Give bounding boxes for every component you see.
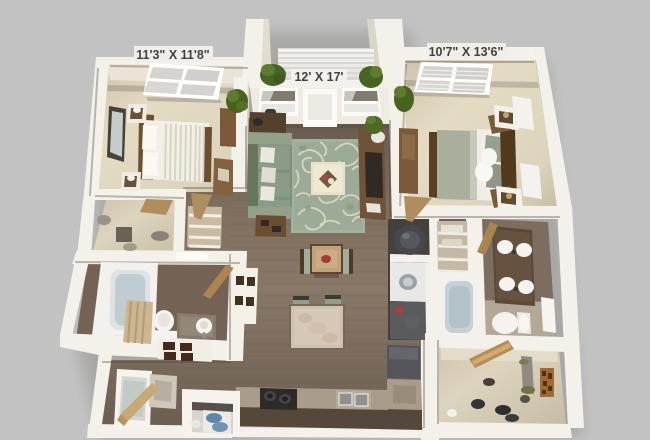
svg-text:12' X 17': 12' X 17' — [294, 70, 343, 84]
svg-text:10'7" X 13'6": 10'7" X 13'6" — [429, 45, 504, 59]
svg-text:11'3" X 11'8": 11'3" X 11'8" — [136, 48, 209, 62]
